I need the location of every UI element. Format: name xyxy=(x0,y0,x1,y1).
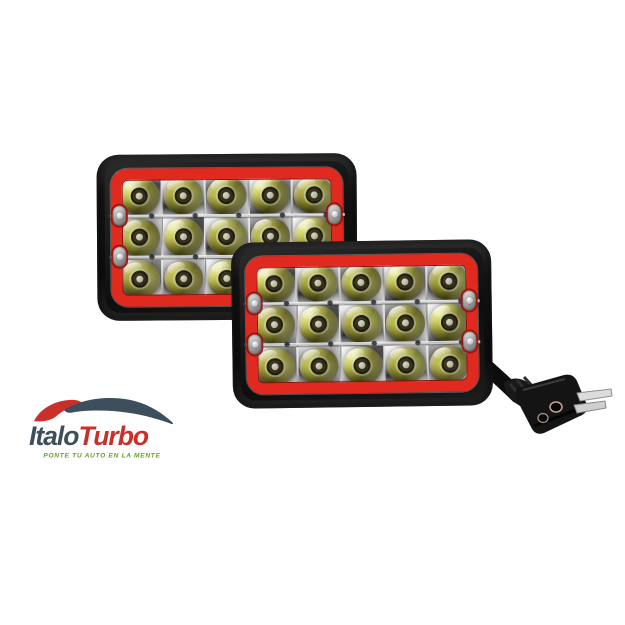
glass-rib xyxy=(109,213,345,218)
screw-pocket xyxy=(463,331,476,351)
screw-pocket xyxy=(248,293,261,313)
screw-icon xyxy=(115,212,123,220)
glass-rib xyxy=(244,299,480,305)
red-bezel xyxy=(245,253,479,394)
headlight-front-glass xyxy=(239,247,485,400)
screw-icon xyxy=(465,296,473,304)
screw-pocket xyxy=(328,204,341,224)
screw-pocket xyxy=(463,290,476,310)
screw-pocket xyxy=(113,206,126,226)
screw-icon xyxy=(250,299,258,307)
screw-pocket xyxy=(113,247,126,267)
screw-icon xyxy=(251,340,259,348)
screw-icon xyxy=(116,253,124,261)
plug-prong xyxy=(577,389,612,401)
brand-turbo: Turbo xyxy=(78,421,148,451)
glass-rib xyxy=(244,340,480,346)
brand-logo: ItaloTurbo PONTE TU AUTO EN LA MENTE xyxy=(28,393,178,465)
headlight-front xyxy=(231,239,493,409)
brand-italo: Italo xyxy=(29,421,79,451)
screw-icon xyxy=(466,337,474,345)
plug-socket-hole xyxy=(550,402,562,412)
product-image: ItaloTurbo PONTE TU AUTO EN LA MENTE xyxy=(0,0,625,625)
screw-pocket xyxy=(248,334,261,354)
brand-tagline: PONTE TU AUTO EN LA MENTE xyxy=(43,453,160,460)
brand-name: ItaloTurbo xyxy=(29,421,149,451)
screw-icon xyxy=(330,210,338,218)
plug-socket-hole xyxy=(538,414,548,423)
